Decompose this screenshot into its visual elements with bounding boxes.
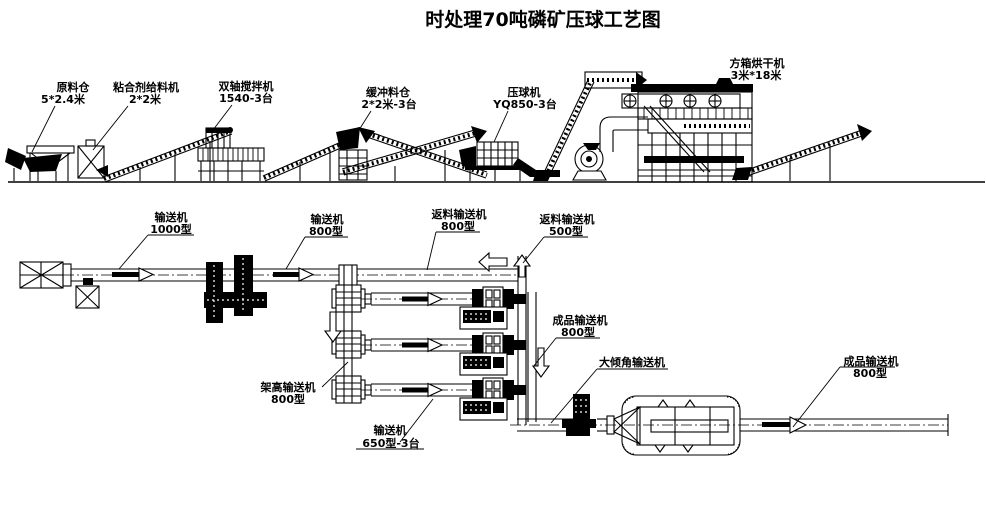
conveyor-800-arrow [273, 268, 313, 281]
label-text: 1540-3台 [219, 91, 273, 105]
label-big-angle-conveyor: 大倾角输送机 [551, 355, 668, 423]
label-text: 原料仓 [57, 80, 91, 94]
label-binder-feeder: 粘合剂给料机 2*2米 [93, 80, 179, 150]
label-text: 成品输送机 [844, 354, 899, 368]
label-text: 5*2.4米 [41, 92, 86, 106]
label-text: 缓冲料仓 [366, 85, 411, 99]
label-conveyor-800: 输送机 800型 [286, 212, 348, 269]
label-text: 输送机 [374, 423, 407, 437]
label-text: 成品输送机 [553, 313, 608, 327]
label-conveyor-1000: 输送机 1000型 [119, 210, 194, 269]
label-text: 800型 [271, 392, 305, 406]
label-text: 650型-3台 [362, 436, 419, 450]
right-inclined-conveyor [732, 124, 872, 181]
big-angle-conveyor-drive [562, 394, 596, 436]
binder-feeder-plan [76, 278, 99, 308]
steep-conveyor-side [533, 72, 647, 181]
label-text: 返料输送机 [540, 212, 595, 226]
label-return-conveyor-800: 返料输送机 800型 [427, 207, 487, 270]
conveyor-1000-arrow [112, 268, 153, 281]
drawing-title: 时处理70吨磷矿压球工艺图 [425, 8, 660, 31]
flow-arrow-left [479, 253, 507, 271]
label-text: 800型 [561, 325, 595, 339]
label-text: 800型 [853, 366, 887, 380]
raw-material-bin-symbol [23, 146, 74, 181]
briquetting-line-2 [332, 331, 526, 375]
inclined-conveyor-2 [263, 142, 343, 181]
label-double-shaft-mixer: 双轴搅拌机 1540-3台 [213, 79, 274, 130]
fan-blower-symbol [573, 143, 606, 180]
label-raw-material-bin: 原料仓 5*2.4米 [32, 80, 90, 152]
label-text: 方箱烘干机 [730, 56, 785, 70]
label-text: 2*2米 [129, 92, 162, 106]
label-text: 500型 [549, 224, 583, 238]
label-text: 压球机 [508, 85, 541, 99]
label-text: 双轴搅拌机 [219, 79, 274, 93]
briquetting-line-3 [332, 376, 526, 420]
label-text: 输送机 [311, 212, 344, 226]
label-text: 3米*18米 [731, 68, 783, 82]
label-return-conveyor-500: 返料输送机 500型 [523, 212, 595, 263]
label-product-conveyor-right: 成品输送机 800型 [793, 354, 899, 427]
label-text: 800型 [309, 224, 343, 238]
dryer-inlet-cone [607, 407, 640, 444]
label-text: 输送机 [155, 210, 188, 224]
label-text: 1000型 [150, 222, 192, 236]
flow-arrow-down-right [533, 348, 549, 377]
annotations-plan: 输送机 1000型 输送机 800型 返料输送机 800型 返料输送机 500型… [119, 207, 899, 450]
process-flow-drawing: 时处理70吨磷矿压球工艺图 [0, 0, 986, 523]
label-text: 大倾角输送机 [599, 355, 665, 369]
mixer-plan-blocks [204, 255, 267, 323]
label-text: 2*2米-3台 [361, 97, 416, 111]
flow-arrow-up [514, 255, 530, 277]
label-text: 返料输送机 [432, 207, 487, 221]
briquetting-machine-symbol [459, 142, 523, 181]
air-duct [600, 117, 648, 152]
drawing-canvas: 时处理70吨磷矿压球工艺图 [0, 0, 986, 523]
plan-view [20, 253, 948, 455]
label-conveyor-650: 输送机 650型-3台 [356, 399, 433, 450]
label-briquetting-machine: 压球机 YQ850-3台 [492, 85, 557, 142]
double-shaft-mixer-symbol [198, 128, 264, 181]
label-text: YQ850-3台 [492, 97, 557, 111]
left-chute-symbol [5, 148, 26, 181]
label-text: 架高输送机 [260, 380, 316, 394]
label-text: 800型 [441, 219, 475, 233]
product-conveyor-vertical-rails [528, 292, 536, 422]
briquetting-line-1 [332, 285, 526, 329]
label-text: 粘合剂给料机 [113, 80, 179, 94]
raw-material-bin-plan [20, 262, 63, 288]
